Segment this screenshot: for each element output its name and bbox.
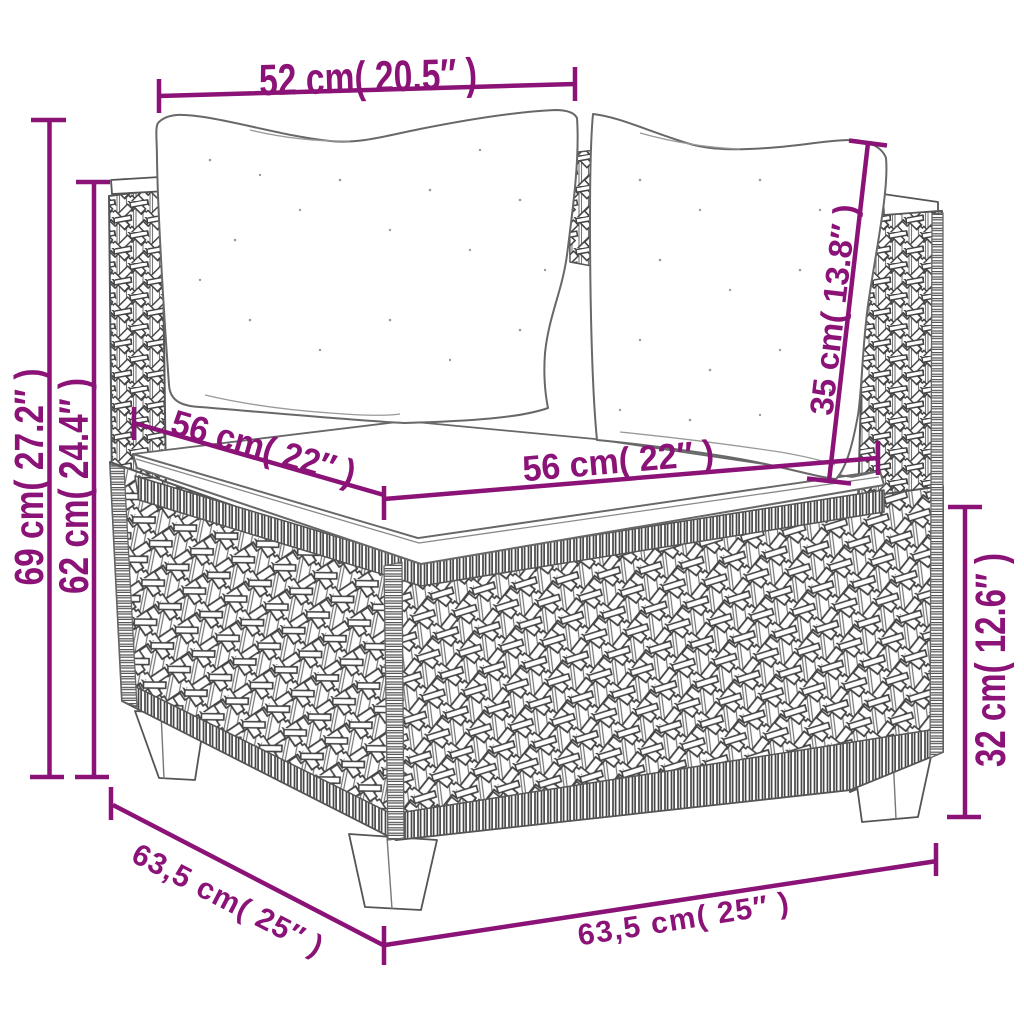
svg-text:32 cm( 12.6″ ): 32 cm( 12.6″ ) [967, 553, 1015, 767]
svg-text:62 cm( 24.4″ ): 62 cm( 24.4″ ) [50, 378, 97, 594]
svg-text:52 cm( 20.5″ ): 52 cm( 20.5″ ) [258, 50, 477, 106]
svg-text:69 cm( 27.2″ ): 69 cm( 27.2″ ) [6, 369, 52, 586]
